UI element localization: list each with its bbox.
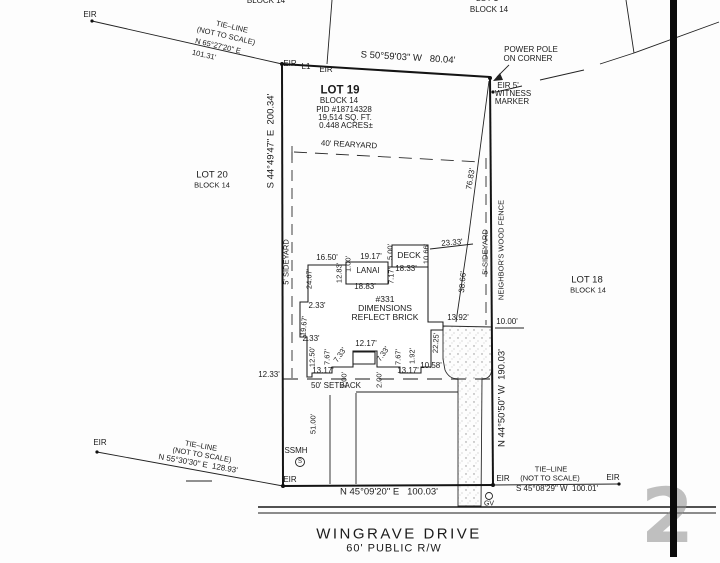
power-pole-note-2: ON CORNER xyxy=(504,55,553,63)
dim: 51.00' xyxy=(309,414,317,434)
setback-label: 50' SETBACK xyxy=(311,382,361,390)
lot18-block: BLOCK 14 xyxy=(570,286,606,294)
eir-marker-label: EIR xyxy=(496,475,509,483)
power-pole-note-1: POWER POLE xyxy=(504,46,558,54)
eir-marker-label: EIR xyxy=(319,66,332,74)
lot20-name: LOT 20 xyxy=(196,170,228,180)
dim: 5.00' xyxy=(386,244,394,260)
dim: 38.66' xyxy=(458,271,468,293)
ssmh-symbol-letter: S xyxy=(298,459,302,465)
bearing-south: N 45°09'20" E 100.03' xyxy=(340,487,438,497)
ssmh-label: SSMH xyxy=(284,447,307,455)
tie-line-se-bearing: S 45°08'29" W 100.01' xyxy=(516,485,598,493)
dim: 2.33' xyxy=(302,335,319,343)
deck-label: DECK xyxy=(397,251,421,260)
lanai-label: LANAI xyxy=(356,267,379,275)
watermark: 2 xyxy=(641,478,694,554)
dim: 7.33' xyxy=(375,345,390,362)
dim: 19.17' xyxy=(360,253,382,261)
gv-label: GV xyxy=(484,501,494,508)
block-label-top-left: BLOCK 14 xyxy=(247,0,285,5)
tie-line-se-title: TIE–LINE xyxy=(535,465,568,473)
dim: 13.17' xyxy=(397,367,419,375)
lot18-name: LOT 18 xyxy=(571,275,603,285)
dim: 76.83' xyxy=(465,168,477,191)
fence-label: NEIGHBOR'S WOOD FENCE xyxy=(497,200,505,300)
bearing-west: S 44°49'47" E 200.34' xyxy=(266,94,276,189)
dim: 10.00' xyxy=(496,318,518,326)
bearing-east: N 44°50'50" W 190.03' xyxy=(497,349,507,447)
labels-layer: BLOCK 14LOT 1BLOCK 14EIRTIE–LINE(NOT TO … xyxy=(0,0,720,563)
dim: 16.50' xyxy=(316,254,338,262)
dim: 12.17' xyxy=(355,340,377,348)
dim: 7.17' xyxy=(387,268,395,284)
block-label-top-right: BLOCK 14 xyxy=(470,6,508,14)
dim: 2.00' xyxy=(375,372,383,388)
sideyard-east-label: 5' SIDEYARD xyxy=(481,229,489,274)
street-rw: 60' PUBLIC R/W xyxy=(346,544,442,555)
lot20-block: BLOCK 14 xyxy=(194,181,230,189)
tie-line-se-note: (NOT TO SCALE) xyxy=(520,474,580,482)
dim: 18.83' xyxy=(354,283,376,291)
eir-marker-label: EIR xyxy=(283,476,296,484)
rearyard-label: 40' REARYARD xyxy=(321,140,378,151)
sideyard-west-label: 5' SIDEYARD xyxy=(282,239,290,284)
eir-marker-label: EIR xyxy=(93,439,106,447)
dim: 22.25' xyxy=(432,333,441,354)
dim: 1.00' xyxy=(344,256,352,272)
dim: 12.83' xyxy=(335,263,343,283)
dim: 13.92' xyxy=(447,314,469,322)
dim: 10.66' xyxy=(422,244,430,264)
dim: 7.33' xyxy=(332,346,347,363)
dim: 2.33' xyxy=(308,302,325,310)
street-name: WINGRAVE DRIVE xyxy=(316,527,482,542)
witness-marker-note-3: MARKER xyxy=(495,98,529,106)
lot-label-top-right: LOT 1 xyxy=(476,0,498,3)
dim: 23.33' xyxy=(441,238,463,248)
dim: 7.67' xyxy=(394,349,402,365)
dim: 24.67' xyxy=(305,269,313,289)
dim: 1.92' xyxy=(408,348,416,364)
dim: 7.67' xyxy=(323,349,331,365)
eir-marker-label: EIR xyxy=(283,60,296,68)
dim: 12.50' xyxy=(308,347,316,367)
dim: 13.17' xyxy=(312,367,334,375)
line-l1-label: L1 xyxy=(302,63,311,71)
dim: 18.33' xyxy=(395,265,417,273)
lot19-area-acres: 0.448 ACRES± xyxy=(319,122,373,130)
tie-line-nw-distance: 101.31' xyxy=(191,49,216,62)
eir-marker-label: EIR xyxy=(606,474,619,482)
eir-marker-label: EIR xyxy=(83,11,96,19)
scan-artifact-bar xyxy=(670,0,677,557)
bearing-north: S 50°59'03" W 80.04' xyxy=(360,50,455,65)
survey-plat-canvas: BLOCK 14LOT 1BLOCK 14EIRTIE–LINE(NOT TO … xyxy=(0,0,720,563)
dim: 10.58' xyxy=(420,362,442,370)
dim: 12.33' xyxy=(258,371,280,379)
lot19-block: BLOCK 14 xyxy=(320,97,358,105)
house-note-2: REFLECT BRICK xyxy=(352,313,419,322)
